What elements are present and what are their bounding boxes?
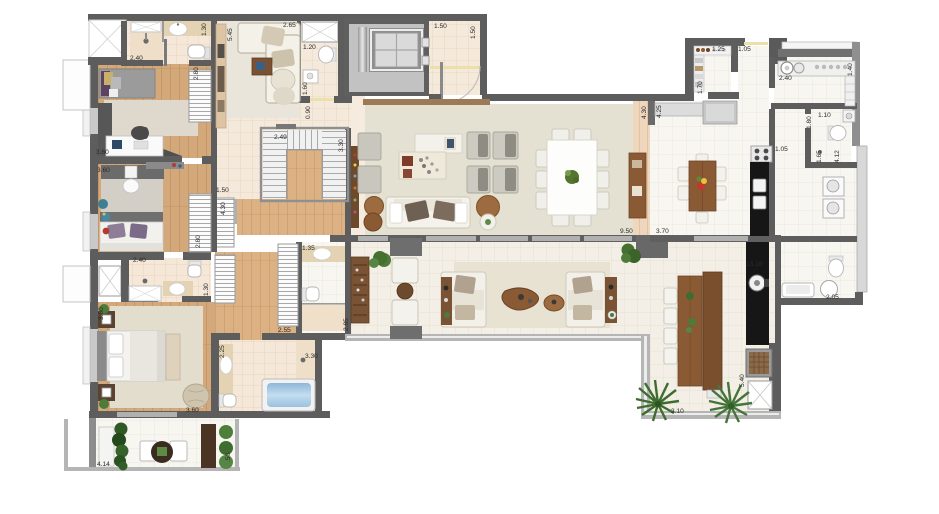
svg-text:5.40: 5.40 bbox=[739, 374, 746, 387]
svg-text:2.25: 2.25 bbox=[219, 345, 226, 358]
svg-text:2.80: 2.80 bbox=[195, 235, 202, 248]
svg-text:3.60: 3.60 bbox=[186, 407, 199, 414]
svg-text:4.30: 4.30 bbox=[220, 202, 227, 215]
svg-text:1.25: 1.25 bbox=[712, 46, 725, 53]
svg-text:4.30: 4.30 bbox=[641, 106, 648, 119]
svg-text:1.50: 1.50 bbox=[216, 187, 229, 194]
svg-text:1.70: 1.70 bbox=[697, 81, 704, 94]
svg-text:1.50: 1.50 bbox=[470, 26, 477, 39]
svg-text:9.50: 9.50 bbox=[620, 228, 633, 235]
svg-text:.50: .50 bbox=[225, 453, 232, 462]
svg-text:2.65: 2.65 bbox=[283, 22, 296, 29]
svg-text:5.45: 5.45 bbox=[227, 28, 234, 41]
svg-text:3.60: 3.60 bbox=[96, 149, 109, 156]
svg-text:1.10: 1.10 bbox=[818, 112, 831, 119]
svg-text:4.14: 4.14 bbox=[97, 461, 110, 468]
svg-text:1.80: 1.80 bbox=[806, 116, 813, 129]
svg-text:2.40: 2.40 bbox=[130, 55, 143, 62]
svg-text:3.60: 3.60 bbox=[98, 307, 105, 320]
svg-text:3.10: 3.10 bbox=[671, 408, 684, 415]
svg-text:3.70: 3.70 bbox=[656, 228, 669, 235]
svg-text:1.40: 1.40 bbox=[847, 63, 854, 76]
svg-text:2.40: 2.40 bbox=[779, 75, 792, 82]
svg-text:1.30: 1.30 bbox=[203, 283, 210, 296]
svg-text:4.12: 4.12 bbox=[834, 150, 841, 163]
svg-text:4.25: 4.25 bbox=[656, 105, 663, 118]
svg-text:3.60: 3.60 bbox=[97, 167, 110, 174]
svg-text:1.20: 1.20 bbox=[303, 44, 316, 51]
svg-text:3.30: 3.30 bbox=[305, 353, 318, 360]
svg-text:1.50: 1.50 bbox=[434, 23, 447, 30]
svg-text:2.40: 2.40 bbox=[133, 257, 146, 264]
svg-text:1.65: 1.65 bbox=[816, 150, 823, 163]
svg-text:1.35: 1.35 bbox=[302, 245, 315, 252]
svg-text:2.85: 2.85 bbox=[343, 318, 350, 331]
svg-text:0.90: 0.90 bbox=[305, 106, 312, 119]
svg-text:3.30: 3.30 bbox=[338, 139, 345, 152]
svg-text:1.05: 1.05 bbox=[738, 46, 751, 53]
svg-text:2.80: 2.80 bbox=[193, 67, 200, 80]
svg-text:2.49: 2.49 bbox=[274, 134, 287, 141]
svg-text:1.60: 1.60 bbox=[302, 82, 309, 95]
svg-text:1.30: 1.30 bbox=[201, 23, 208, 36]
svg-text:2.55: 2.55 bbox=[278, 327, 291, 334]
svg-text:1.05: 1.05 bbox=[775, 146, 788, 153]
svg-text:13.16: 13.16 bbox=[746, 261, 763, 268]
svg-text:2.05: 2.05 bbox=[826, 294, 839, 301]
